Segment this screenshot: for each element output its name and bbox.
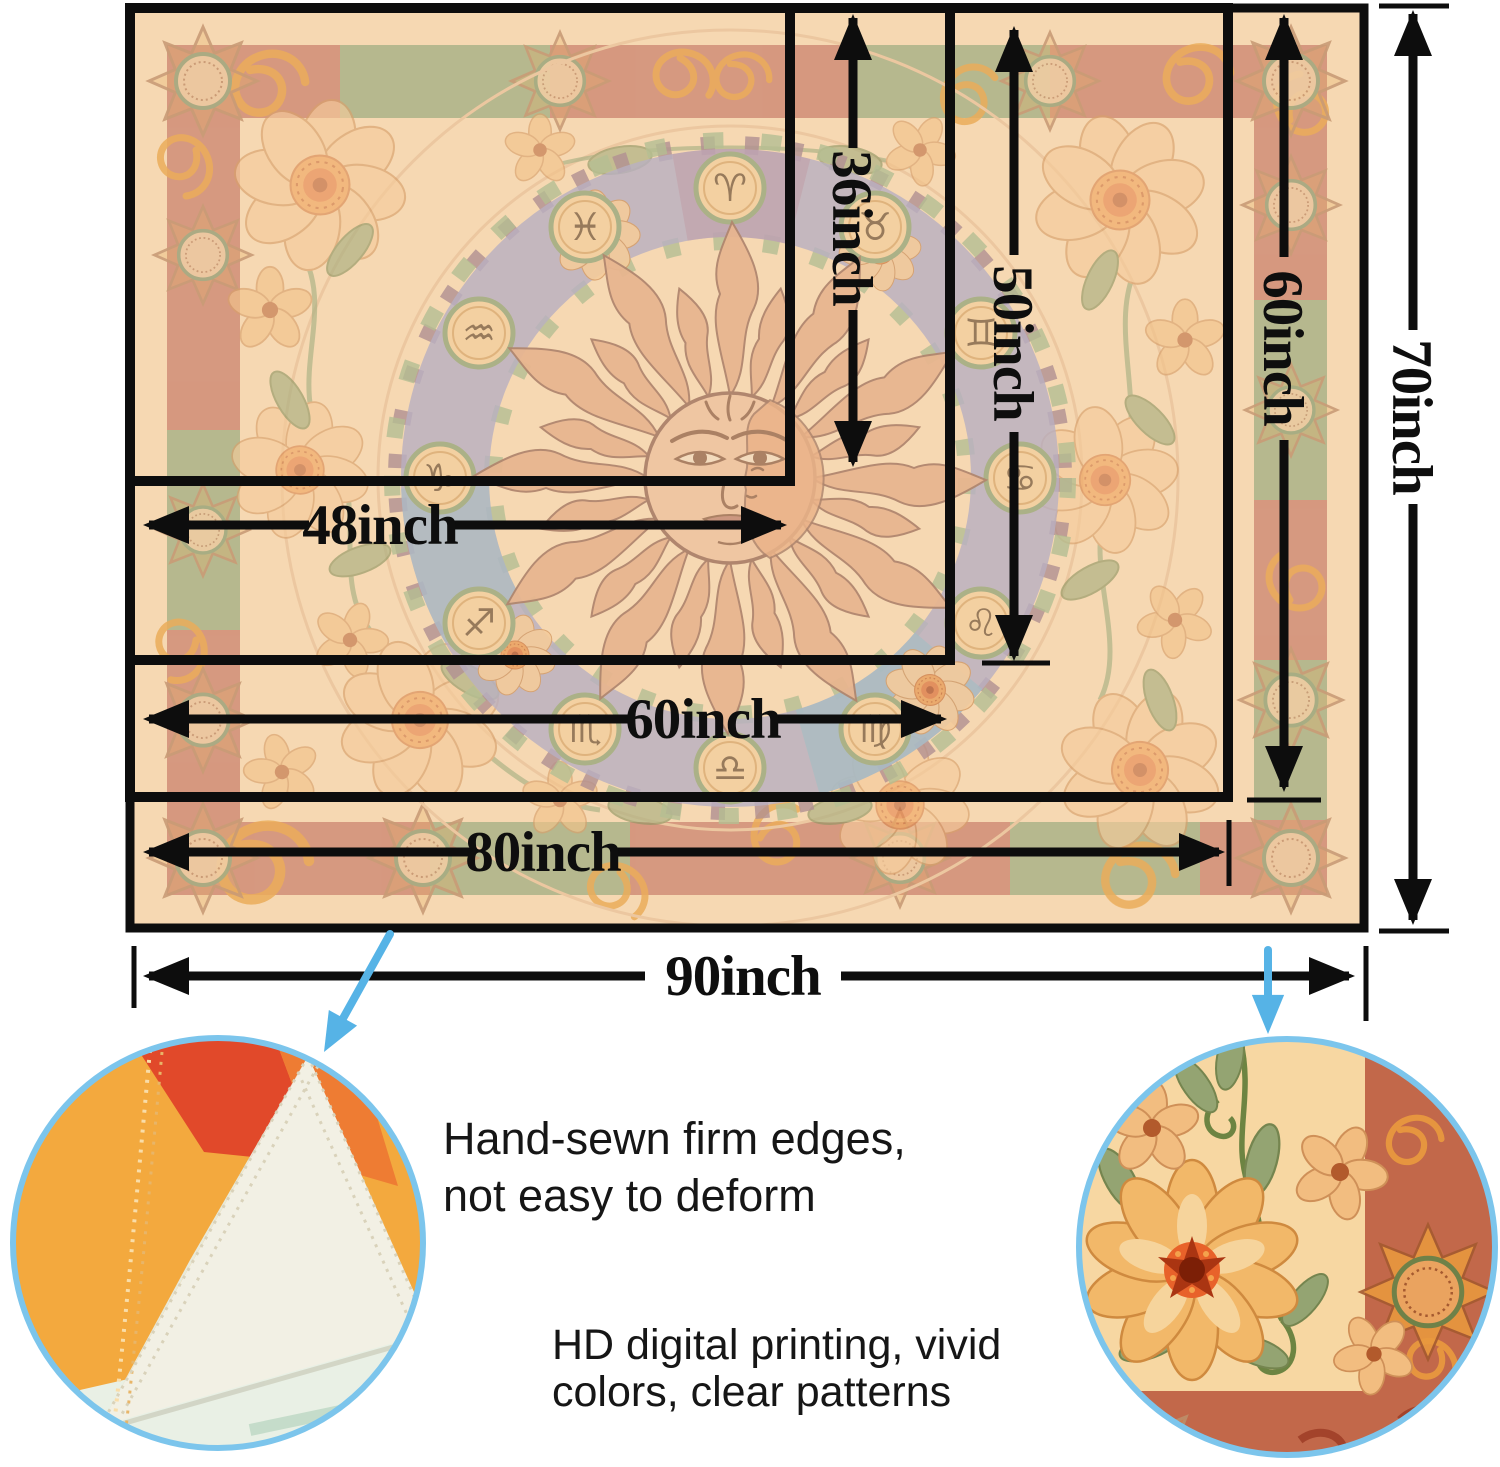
callout-section: Hand-sewn firm edges, not easy to deform… <box>0 934 1500 1467</box>
caption-printing-line1: HD digital printing, vivid <box>552 1321 1001 1369</box>
dim-label-60inch-h: 60inch <box>625 688 781 751</box>
caption-hand-sewn: Hand-sewn firm edges, not easy to deform <box>443 1113 906 1221</box>
pattern-closeup <box>1075 1024 1500 1467</box>
caption-edges-line2: not easy to deform <box>443 1170 816 1221</box>
fabric-edge-closeup <box>0 1014 445 1467</box>
dim-label-60inch-v: 60inch <box>1251 270 1314 426</box>
dim-label-50inch: 50inch <box>981 265 1044 421</box>
dim-label-36inch: 36inch <box>820 150 883 306</box>
dim-label-70inch: 70inch <box>1380 339 1443 495</box>
dim-label-90inch: 90inch <box>665 945 821 1008</box>
tapestry-image: ♈ ♉ ♊ ♋ ♌ ♍ ♎ ♏ ♐ ♑ ♒ ♓ <box>130 8 1364 930</box>
caption-hd-printing: HD digital printing, vivid colors, clear… <box>552 1321 1001 1416</box>
infographic-scene: ♈ ♉ ♊ ♋ ♌ ♍ ♎ ♏ ♐ ♑ ♒ ♓ <box>0 0 1500 1467</box>
caption-printing-line2: colors, clear patterns <box>552 1368 951 1416</box>
caption-edges-line1: Hand-sewn firm edges, <box>443 1113 906 1164</box>
dim-label-48inch: 48inch <box>302 494 458 557</box>
dim-label-80inch: 80inch <box>465 821 621 884</box>
callout-arrow-left-icon <box>310 934 390 1060</box>
callout-arrow-right-icon <box>1252 950 1284 1034</box>
product-infographic: ♈ ♉ ♊ ♋ ♌ ♍ ♎ ♏ ♐ ♑ ♒ ♓ <box>0 0 1500 1467</box>
